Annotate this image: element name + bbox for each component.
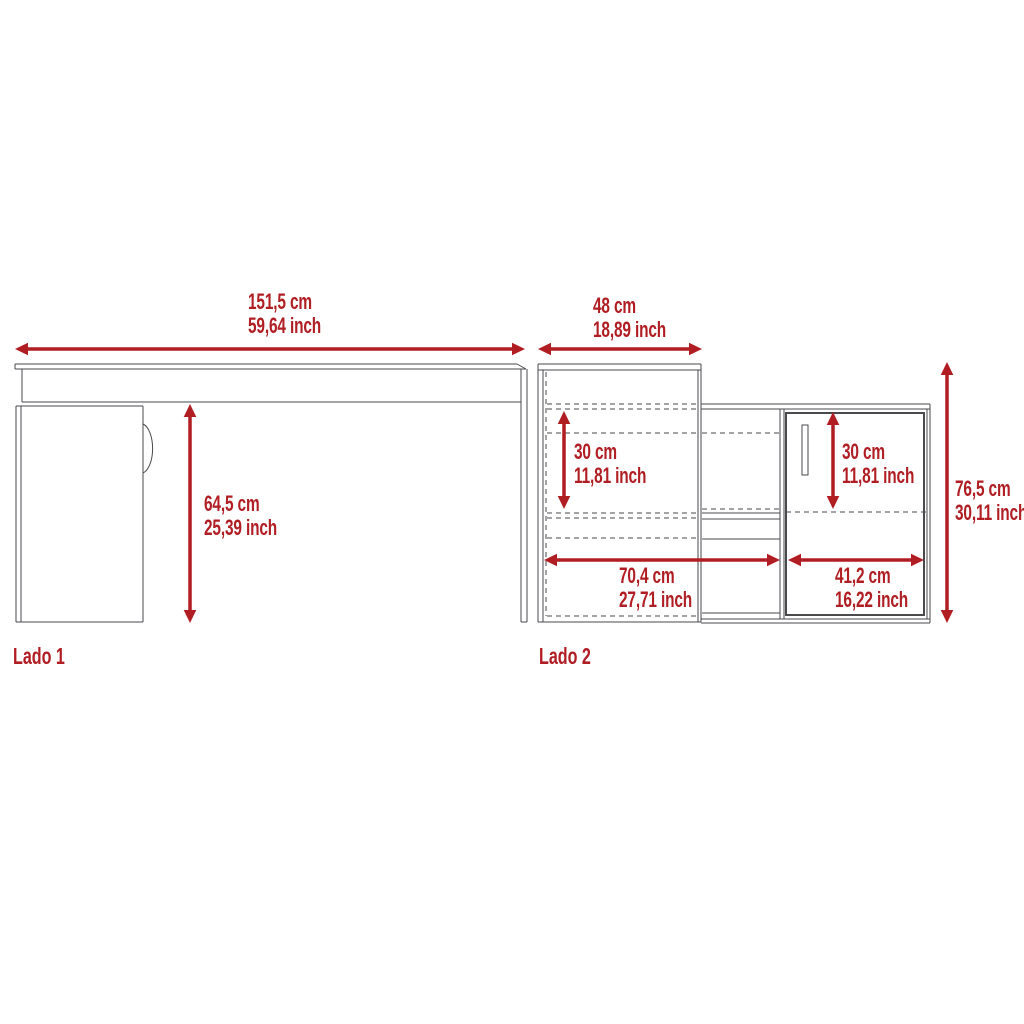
desk-back-rail <box>22 369 521 402</box>
side1-label: Lado 1 <box>13 644 65 668</box>
dim-arrow-total-height <box>941 362 954 623</box>
dim-arrow-cabinet-shelf-height <box>827 412 840 509</box>
dim-arrow-desk-width <box>15 343 525 356</box>
desk-top-corner <box>517 364 526 369</box>
cabinet-shelf-height-inch: 11,81 inch <box>842 464 914 488</box>
dimension-diagram-canvas: 151,5 cm 59,64 inch 64,5 cm 25,39 inch 4… <box>0 0 1024 1024</box>
cabinet-width-inch: 16,22 inch <box>835 588 908 612</box>
open-section-width-cm: 70,4 cm <box>619 564 692 588</box>
open-section-width-label: 70,4 cm 27,71 inch <box>619 564 692 612</box>
cabinet-shelf-height-cm: 30 cm <box>842 440 914 464</box>
desk-top-outline <box>15 364 526 369</box>
hutch-shelf-height-label: 30 cm 11,81 inch <box>574 440 646 488</box>
return-top-width-inch: 18,89 inch <box>593 318 666 342</box>
total-height-inch: 30,11 inch <box>955 501 1024 525</box>
pedestal-handle-icon <box>143 424 153 473</box>
desk-pedestal-outline <box>16 406 143 622</box>
cabinet-shelf-height-label: 30 cm 11,81 inch <box>842 440 914 488</box>
side2-label: Lado 2 <box>539 644 591 668</box>
hutch-shelf-height-inch: 11,81 inch <box>574 464 646 488</box>
cabinet-width-cm: 41,2 cm <box>835 564 908 588</box>
hutch-shelf-height-cm: 30 cm <box>574 440 646 464</box>
desk-height-cm: 64,5 cm <box>204 492 277 516</box>
return-top-width-cm: 48 cm <box>593 294 666 318</box>
open-section-width-inch: 27,71 inch <box>619 588 692 612</box>
desk-height-label: 64,5 cm 25,39 inch <box>204 492 277 540</box>
desk-width-cm: 151,5 cm <box>248 290 321 314</box>
dim-arrow-return-top-width <box>538 343 702 356</box>
desk-width-label: 151,5 cm 59,64 inch <box>248 290 321 338</box>
desk-width-inch: 59,64 inch <box>248 314 321 338</box>
open-section-hidden-lines <box>702 433 780 509</box>
cabinet-door-handle-icon <box>802 425 808 475</box>
return-top-width-label: 48 cm 18,89 inch <box>593 294 666 342</box>
total-height-cm: 76,5 cm <box>955 477 1024 501</box>
dim-arrow-hutch-shelf-height <box>558 411 571 509</box>
desk-height-inch: 25,39 inch <box>204 516 277 540</box>
furniture-drawing <box>0 0 1024 1024</box>
cabinet-width-label: 41,2 cm 16,22 inch <box>835 564 908 612</box>
dim-arrow-desk-height <box>184 404 197 623</box>
desk-right-leg <box>521 369 527 622</box>
total-height-label: 76,5 cm 30,11 inch <box>955 477 1024 525</box>
